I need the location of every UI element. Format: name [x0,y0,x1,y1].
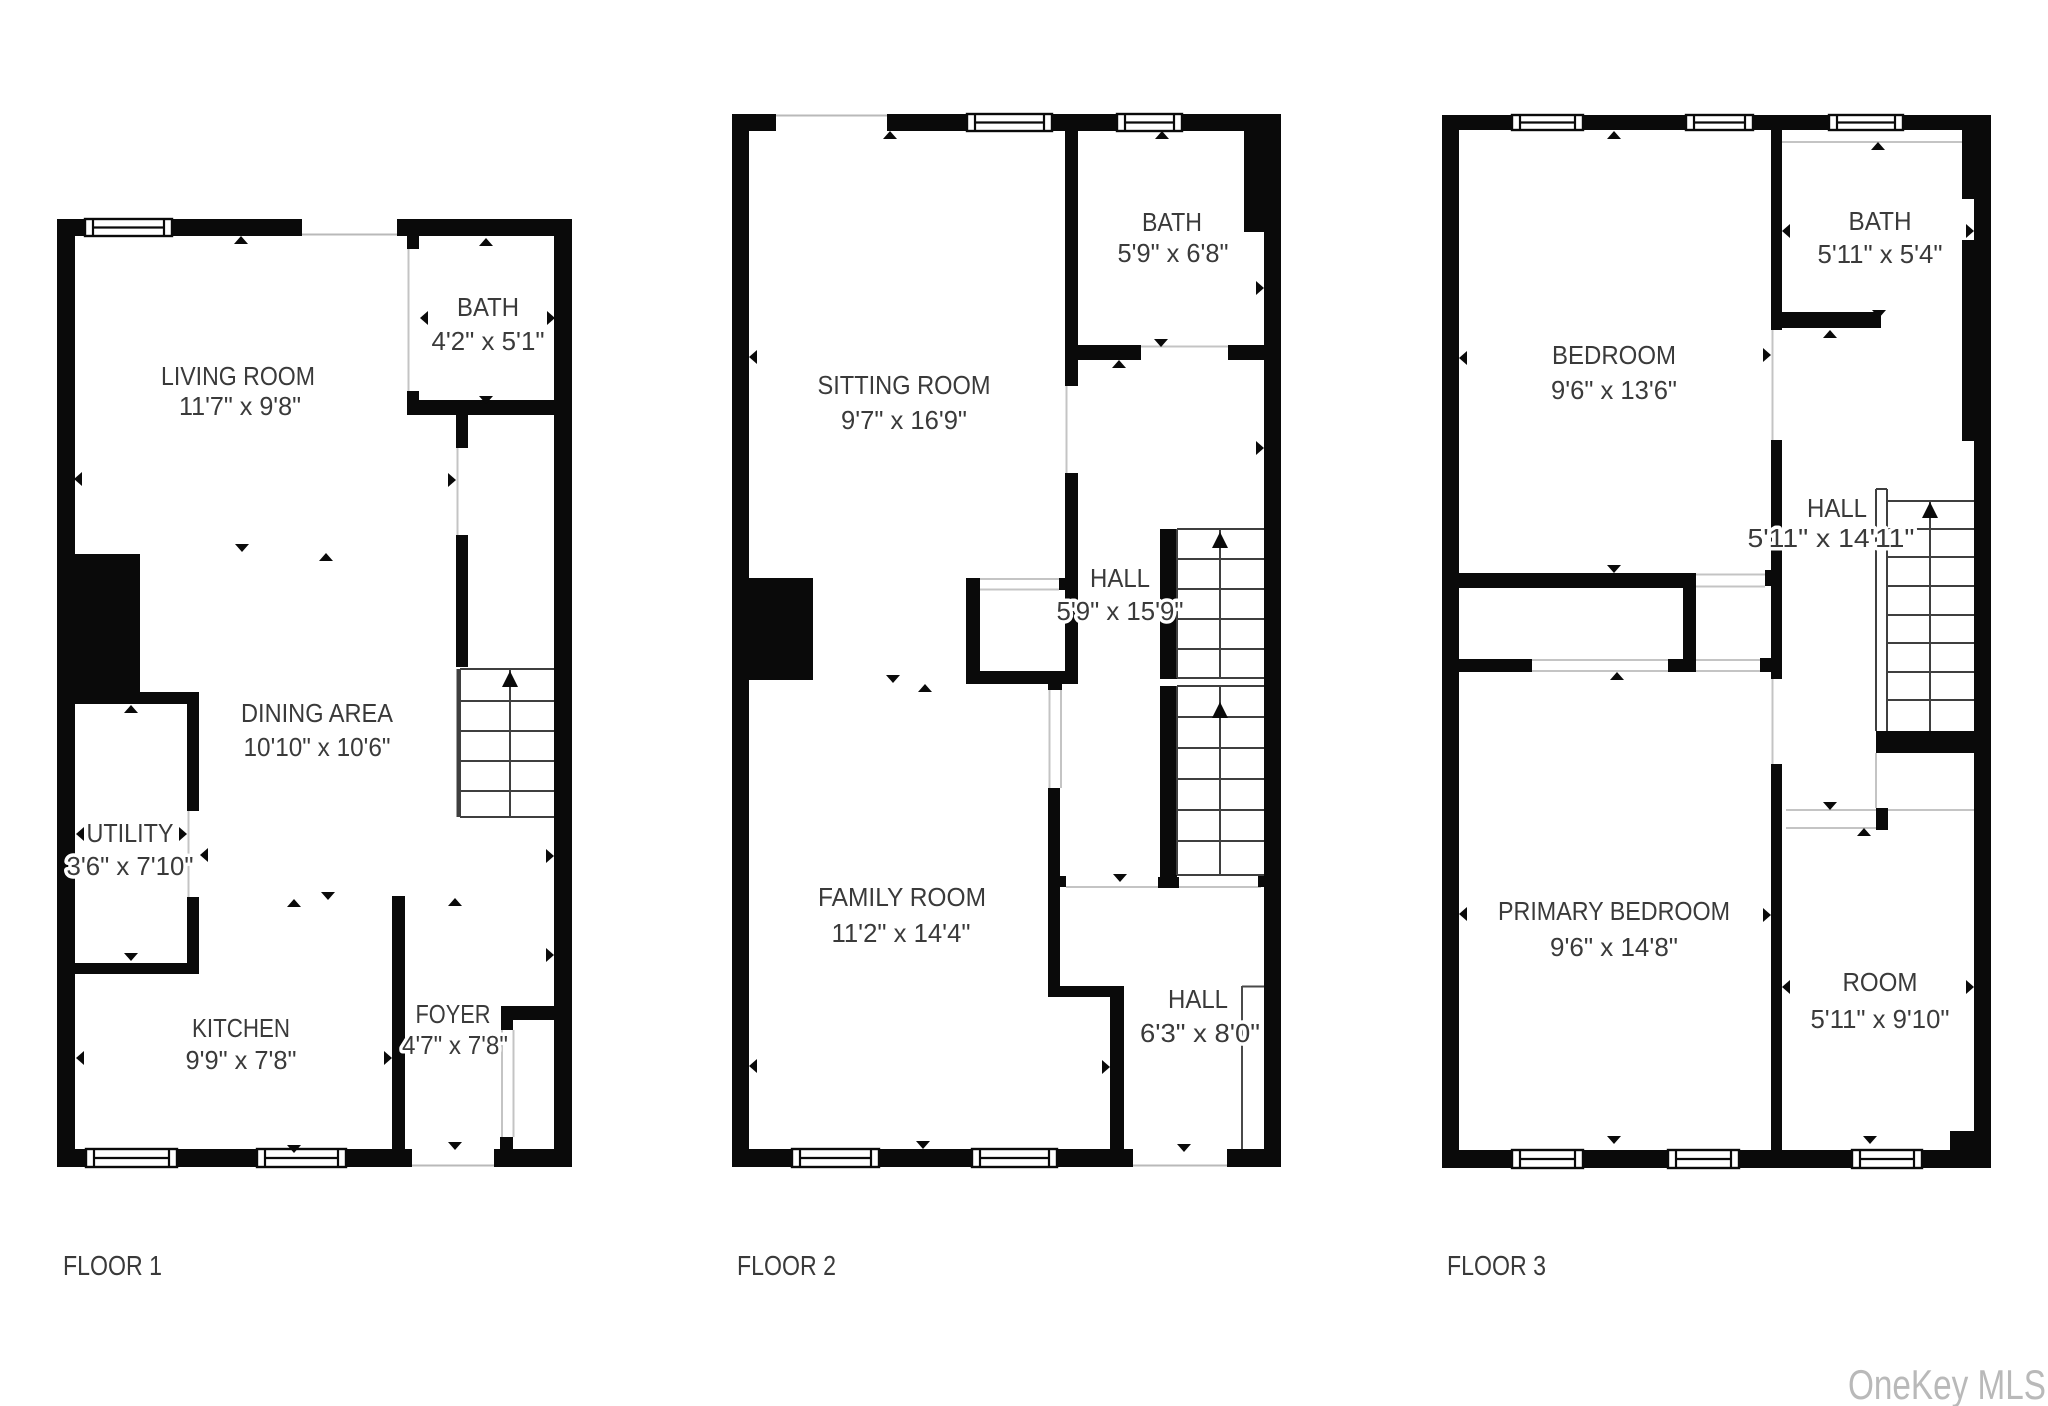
svg-text:5'9" x 15'9": 5'9" x 15'9" [1057,596,1184,626]
svg-text:BATH: BATH [457,292,519,322]
svg-text:9'6" x 13'6": 9'6" x 13'6" [1551,375,1677,405]
svg-text:5'11" x 14'11": 5'11" x 14'11" [1748,523,1915,553]
svg-text:11'7" x 9'8": 11'7" x 9'8" [179,391,301,421]
svg-text:PRIMARY BEDROOM: PRIMARY BEDROOM [1498,896,1730,926]
svg-text:FOYER: FOYER [416,999,491,1029]
svg-text:5'9" x 6'8": 5'9" x 6'8" [1118,238,1229,268]
svg-text:HALL: HALL [1168,984,1228,1014]
svg-text:BATH: BATH [1849,206,1912,236]
svg-text:9'7" x 16'9": 9'7" x 16'9" [841,405,967,435]
svg-text:HALL: HALL [1807,493,1867,523]
svg-text:UTILITY: UTILITY [87,818,174,848]
svg-text:OneKey MLS: OneKey MLS [1848,1361,2046,1406]
svg-text:FLOOR 2: FLOOR 2 [737,1250,836,1281]
svg-text:BATH: BATH [1142,207,1202,237]
svg-text:9'6" x 14'8": 9'6" x 14'8" [1550,932,1678,962]
svg-text:SITTING ROOM: SITTING ROOM [818,370,991,400]
svg-text:10'10" x 10'6": 10'10" x 10'6" [244,732,391,762]
svg-text:FLOOR 3: FLOOR 3 [1447,1250,1546,1281]
svg-text:KITCHEN: KITCHEN [192,1013,290,1043]
svg-text:HALL: HALL [1090,563,1150,593]
svg-text:FLOOR 1: FLOOR 1 [63,1250,162,1281]
svg-text:4'2" x 5'1": 4'2" x 5'1" [432,326,545,356]
svg-text:ROOM: ROOM [1843,967,1918,997]
svg-text:5'11" x 9'10": 5'11" x 9'10" [1811,1004,1950,1034]
svg-text:BEDROOM: BEDROOM [1552,340,1676,370]
svg-text:6'3" x 8'0": 6'3" x 8'0" [1140,1018,1260,1048]
svg-text:9'9" x 7'8": 9'9" x 7'8" [186,1045,297,1075]
svg-text:11'2" x 14'4": 11'2" x 14'4" [832,918,971,948]
svg-text:4'7" x 7'8": 4'7" x 7'8" [402,1030,508,1060]
svg-text:5'11" x 5'4": 5'11" x 5'4" [1818,239,1943,269]
svg-text:3'6" x 7'10": 3'6" x 7'10" [67,851,194,881]
svg-text:LIVING ROOM: LIVING ROOM [161,361,315,391]
svg-text:DINING AREA: DINING AREA [241,698,394,728]
svg-text:FAMILY ROOM: FAMILY ROOM [818,882,986,912]
